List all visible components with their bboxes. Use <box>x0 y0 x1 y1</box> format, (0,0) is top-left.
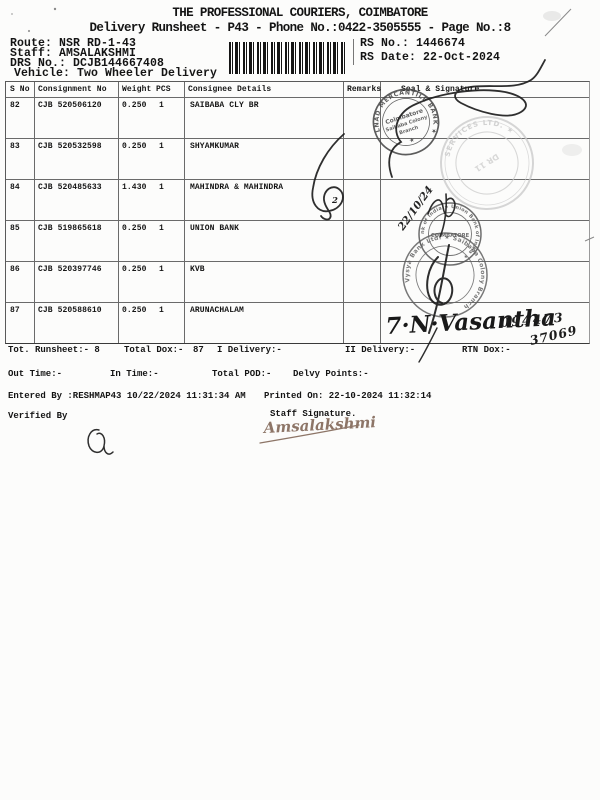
table-row: 83 CJB 520532598 0.250 1 SHYAMKUMAR <box>6 138 589 179</box>
cell-sno: 86 <box>10 266 20 275</box>
col-header-seal-signature: Seal & Signature <box>401 86 479 95</box>
cell-pcs: 1 <box>159 266 164 275</box>
table-row: 82 CJB 520506120 0.250 1 SAIBABA CLY BR <box>6 97 589 138</box>
col-header-sno: S No <box>10 86 30 95</box>
cell-consignment-no: CJB 520506120 <box>38 102 102 111</box>
consignment-table: S No Consignment No Weight PCS Consignee… <box>5 81 590 344</box>
cell-pcs: 1 <box>159 184 164 193</box>
document-title: THE PROFESSIONAL COURIERS, COIMBATORE <box>172 7 427 21</box>
col-header-pcs: PCS <box>156 86 171 95</box>
cell-pcs: 1 <box>159 307 164 316</box>
table-row: 85 CJB 519865618 0.250 1 UNION BANK <box>6 220 589 261</box>
cell-consignee: UNION BANK <box>190 225 239 234</box>
cell-consignee: SAIBABA CLY BR <box>190 102 259 111</box>
cell-weight: 0.250 <box>122 266 147 275</box>
table-row: 84 CJB 520485633 1.430 1 MAHINDRA & MAHI… <box>6 179 589 220</box>
table-row: 86 CJB 520397746 0.250 1 KVB <box>6 261 589 302</box>
cell-consignee: KVB <box>190 266 205 275</box>
total-pod: Total POD:- <box>212 370 271 380</box>
cell-weight: 0.250 <box>122 143 147 152</box>
cell-weight: 0.250 <box>122 102 147 111</box>
staff-signature-label: Staff Signature. <box>270 410 356 420</box>
delivery-runsheet-document: THE PROFESSIONAL COURIERS, COIMBATORE De… <box>0 0 600 800</box>
printed-on: Printed On: 22-10-2024 11:32:14 <box>264 392 431 402</box>
cell-consignee: MAHINDRA & MAHINDRA <box>190 184 283 193</box>
cell-sno: 82 <box>10 102 20 111</box>
col-header-consignment: Consignment No <box>38 86 107 95</box>
col-header-consignee: Consignee Details <box>188 86 271 95</box>
cell-consignee: SHYAMKUMAR <box>190 143 239 152</box>
cell-pcs: 1 <box>159 102 164 111</box>
cell-consignment-no: CJB 520532598 <box>38 143 102 152</box>
entered-by: Entered By :RESHMAP43 10/22/2024 11:31:3… <box>8 392 246 402</box>
table-row: 87 CJB 520588610 0.250 1 ARUNACHALAM <box>6 302 589 343</box>
total-dox-value: 87 <box>193 346 204 356</box>
rs-no-line: RS No.: 1446674 <box>360 38 465 51</box>
cell-weight: 0.250 <box>122 225 147 234</box>
in-time: In Time:- <box>110 370 159 380</box>
tot-runsheet: Tot. Runsheet:- 8 <box>8 346 100 356</box>
cell-consignee: ARUNACHALAM <box>190 307 244 316</box>
total-dox-label: Total Dox:- <box>124 346 183 356</box>
col-header-remarks: Remarks <box>347 86 381 95</box>
col-header-weight: Weight <box>122 86 151 95</box>
rtn-dox: RTN Dox:- <box>462 346 511 356</box>
cell-consignment-no: CJB 520588610 <box>38 307 102 316</box>
cell-weight: 1.430 <box>122 184 147 193</box>
cell-pcs: 1 <box>159 225 164 234</box>
cell-consignment-no: CJB 520485633 <box>38 184 102 193</box>
cell-consignment-no: CJB 520397746 <box>38 266 102 275</box>
cell-sno: 84 <box>10 184 20 193</box>
rs-date-line: RS Date: 22-Oct-2024 <box>360 52 500 65</box>
cell-weight: 0.250 <box>122 307 147 316</box>
cell-pcs: 1 <box>159 143 164 152</box>
cell-sno: 85 <box>10 225 20 234</box>
ii-delivery: II Delivery:- <box>345 346 415 356</box>
verified-by-label: Verified By <box>8 412 67 422</box>
i-delivery: I Delivery:- <box>217 346 282 356</box>
cell-sno: 83 <box>10 143 20 152</box>
runsheet-barcode <box>229 42 346 74</box>
delvy-points: Delvy Points:- <box>293 370 369 380</box>
cell-consignment-no: CJB 519865618 <box>38 225 102 234</box>
rs-block-divider <box>353 39 354 65</box>
document-subtitle: Delivery Runsheet - P43 - Phone No.:0422… <box>90 22 511 36</box>
out-time: Out Time:- <box>8 370 62 380</box>
cell-sno: 87 <box>10 307 20 316</box>
staff-signature-underline <box>260 425 359 443</box>
verified-by-scribble <box>88 430 113 454</box>
vehicle-line: Vehicle: Two Wheeler Delivery <box>14 68 217 81</box>
